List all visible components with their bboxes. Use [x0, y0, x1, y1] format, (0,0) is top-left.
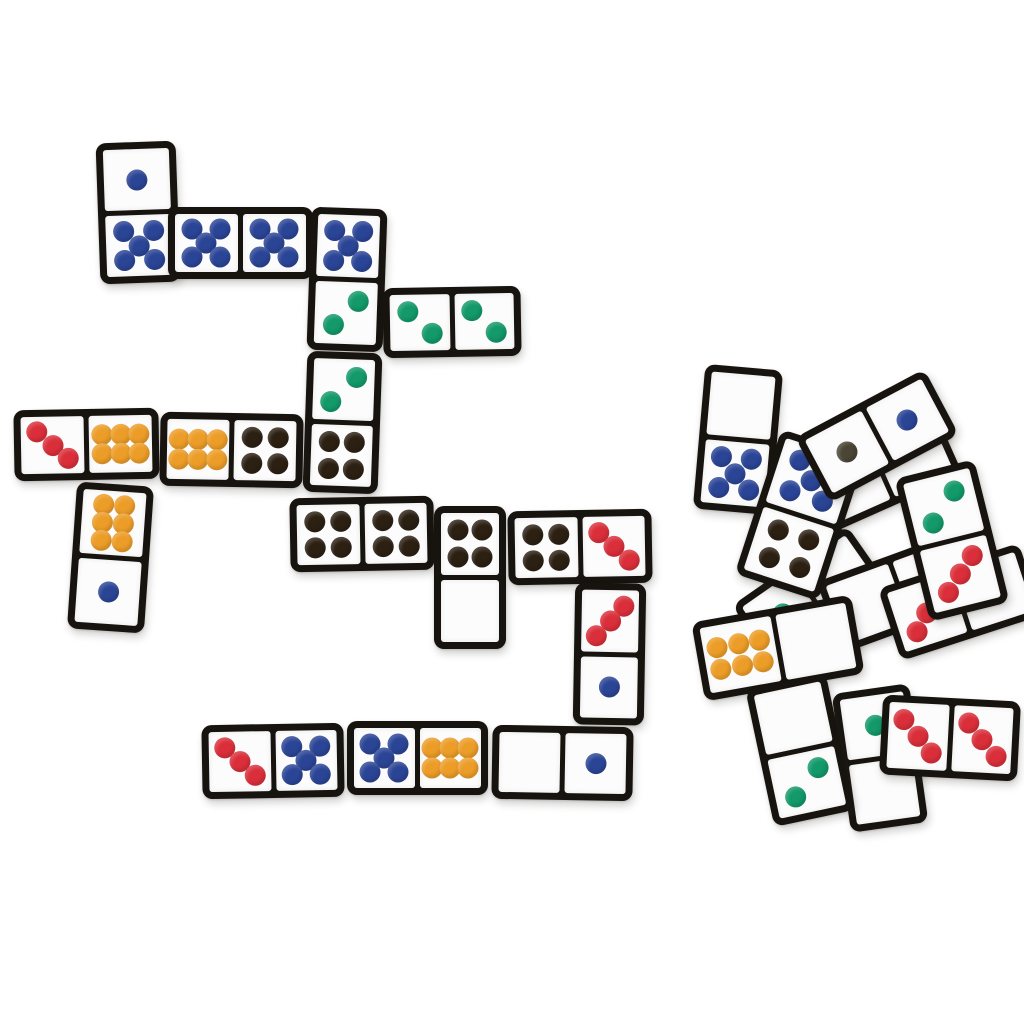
orange-pip	[205, 449, 226, 470]
orange-pip	[128, 423, 149, 444]
orange-pip	[90, 423, 111, 444]
domino-half-2-green	[314, 280, 378, 344]
domino-half-0	[754, 681, 833, 754]
orange-pip	[187, 429, 208, 450]
domino-half-2-green	[390, 294, 450, 351]
green-pip	[421, 323, 442, 344]
domino-3-5	[201, 723, 344, 799]
black-pip	[472, 519, 493, 540]
black-pip	[331, 537, 352, 558]
domino-half-6-orange	[166, 419, 229, 480]
black-pip	[330, 510, 351, 531]
black-pip	[549, 550, 570, 571]
blue-pip	[359, 762, 380, 783]
domino-4-4	[289, 496, 434, 573]
domino-4-3	[507, 509, 652, 586]
blue-pip	[278, 246, 299, 267]
orange-pip	[128, 442, 149, 463]
orange-pip	[206, 429, 227, 450]
orange-pip	[747, 628, 771, 652]
orange-pip	[709, 657, 733, 681]
domino-half-5-blue	[354, 728, 415, 788]
domino-half-1-blue	[74, 557, 141, 625]
red-pip	[920, 742, 942, 764]
domino-half-6-orange	[79, 488, 146, 556]
green-pip	[322, 314, 344, 336]
domino-2-2	[382, 286, 521, 358]
orange-pip	[109, 442, 130, 463]
orange-pip	[458, 758, 479, 779]
black-pip	[304, 511, 325, 532]
orange-pip	[458, 737, 479, 758]
black-pip	[343, 431, 365, 453]
green-pip	[784, 784, 809, 809]
domino-half-3-red	[886, 702, 949, 771]
green-pip	[461, 300, 482, 321]
domino-half-3-red	[920, 534, 1001, 613]
green-pip	[921, 510, 946, 535]
domino-0-1	[491, 725, 633, 801]
domino-half-3-red	[951, 705, 1014, 774]
black-pip	[786, 554, 812, 580]
orange-pip	[730, 654, 754, 678]
blue-pip	[893, 406, 921, 434]
orange-pip	[751, 650, 775, 674]
domino-half-6-orange	[88, 414, 152, 472]
black-pip	[317, 457, 339, 479]
domino-half-3-red	[20, 416, 84, 474]
domino-half-4-black	[233, 420, 296, 481]
domino-5-6	[347, 721, 488, 795]
domino-half-2-green	[312, 357, 375, 420]
red-pip	[57, 447, 78, 468]
green-pip	[805, 755, 830, 780]
domino-2-4	[302, 350, 382, 494]
black-pip	[765, 517, 791, 543]
domino-half-0	[706, 371, 775, 439]
green-pip	[941, 478, 966, 503]
domino-half-6-orange	[699, 616, 781, 693]
domino-5-2	[307, 206, 388, 352]
domino-half-3-red	[208, 731, 271, 792]
blue-pip	[351, 250, 373, 272]
black-pip	[267, 453, 288, 474]
black-pip	[756, 545, 782, 571]
orange-pip	[111, 530, 133, 552]
black-pip	[398, 536, 419, 557]
black-pip	[398, 509, 419, 530]
black-pip	[447, 547, 468, 568]
orange-pip	[89, 528, 111, 550]
domino-half-1-blue	[103, 147, 171, 210]
blue-pip	[96, 580, 118, 602]
green-pip	[397, 301, 418, 322]
black-pip	[523, 550, 544, 571]
orange-pip	[726, 631, 750, 655]
black-pip	[305, 537, 326, 558]
dominoes-photo	[0, 0, 1024, 1024]
blue-pip	[114, 249, 136, 271]
blue-pip	[144, 248, 166, 270]
blue-pip	[282, 764, 303, 785]
orange-pip	[109, 423, 130, 444]
domino-5-5	[168, 207, 313, 279]
orange-pip	[705, 635, 729, 659]
domino-half-4-black	[514, 517, 578, 578]
domino-half-2-green	[903, 467, 984, 546]
blue-pip	[323, 249, 345, 271]
blue-pip	[777, 478, 803, 504]
black-pip	[372, 510, 393, 531]
red-pip	[585, 625, 606, 646]
green-pip	[320, 390, 342, 412]
green-pip	[348, 290, 370, 312]
domino-half-4-black	[296, 504, 360, 565]
domino-half-4-black	[364, 503, 428, 564]
domino-3-3	[879, 694, 1021, 781]
domino-half-4-black	[309, 423, 372, 486]
domino-half-5-blue	[105, 213, 173, 276]
domino-half-2-green	[454, 293, 514, 350]
domino-half-0	[775, 603, 857, 680]
blue-pip	[249, 246, 270, 267]
black-pip	[522, 524, 543, 545]
domino-half-2-green	[767, 745, 846, 818]
domino-half-3-red	[582, 516, 646, 577]
blue-pip	[598, 677, 619, 698]
domino-half-0	[441, 580, 499, 642]
domino-half-5-blue	[316, 213, 380, 277]
dark-pip	[833, 438, 861, 466]
orange-pip	[187, 449, 208, 470]
black-pip	[548, 523, 569, 544]
blue-pip	[584, 753, 605, 774]
black-pip	[372, 536, 393, 557]
green-pip	[345, 366, 367, 388]
domino-3-1	[572, 582, 645, 725]
black-pip	[447, 519, 468, 540]
domino-half-0	[498, 732, 560, 793]
domino-half-4-black	[441, 513, 499, 575]
black-pip	[241, 453, 262, 474]
black-pip	[795, 527, 821, 553]
blue-pip	[737, 478, 760, 501]
blue-pip	[210, 246, 231, 267]
domino-half-3-red	[581, 590, 639, 652]
domino-6-4	[159, 412, 303, 488]
black-pip	[241, 426, 262, 447]
domino-3-6	[13, 407, 159, 481]
domino-6-1	[66, 481, 153, 633]
domino-half-5-blue	[275, 730, 338, 791]
domino-half-1-blue	[564, 733, 626, 794]
green-pip	[486, 322, 507, 343]
blue-pip	[310, 764, 331, 785]
black-pip	[267, 427, 288, 448]
orange-pip	[91, 443, 112, 464]
red-pip	[244, 765, 265, 786]
orange-pip	[168, 428, 189, 449]
black-pip	[342, 458, 364, 480]
domino-half-5-blue	[243, 214, 306, 272]
domino-4-0	[434, 506, 506, 649]
domino-half-1-blue	[579, 656, 637, 718]
blue-pip	[181, 246, 202, 267]
red-pip	[985, 745, 1007, 767]
red-pip	[618, 550, 639, 571]
black-pip	[318, 430, 340, 452]
black-pip	[472, 547, 493, 568]
domino-half-6-orange	[420, 728, 481, 788]
blue-pip	[388, 762, 409, 783]
blue-pip	[126, 168, 148, 190]
orange-pip	[168, 449, 189, 470]
domino-half-5-blue	[175, 214, 238, 272]
